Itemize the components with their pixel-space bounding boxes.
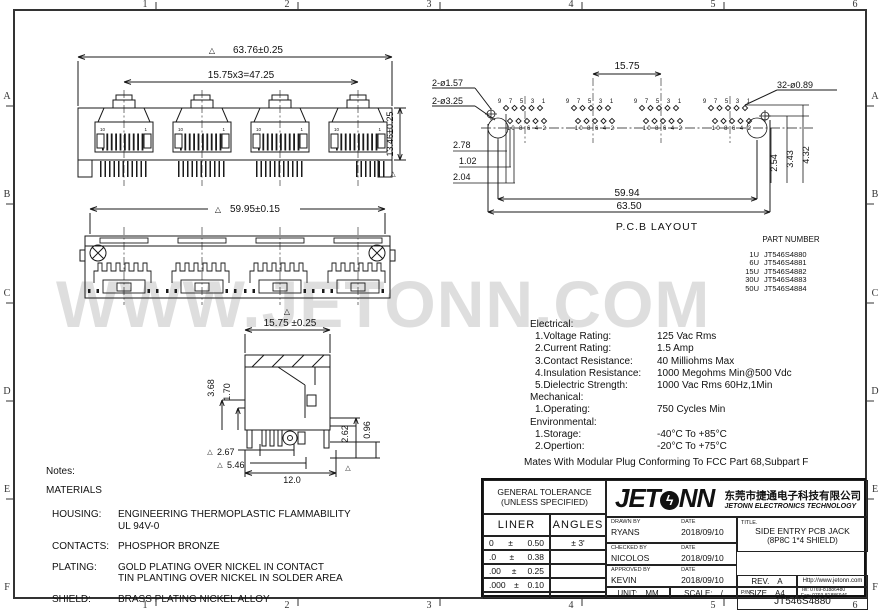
- port-pin-number: 1: [144, 127, 147, 132]
- spec-value: 1.5 Amp: [657, 343, 694, 355]
- drawing-title: SIDE ENTRY PCB JACK: [738, 526, 867, 536]
- port-pin-number: 10: [100, 127, 106, 132]
- port-pin-number: 1: [222, 127, 225, 132]
- date-value: 2018/09/10: [681, 527, 724, 537]
- pin-numbers-top: 9 7 5 3 1: [634, 99, 684, 105]
- inspection-triangle-icon: △: [209, 46, 216, 55]
- tol-value: 0.25: [527, 566, 544, 576]
- material-row: CONTACTS: PHOSPHOR BRONZE: [46, 541, 466, 553]
- drawn-by-cell: DRAWN BYDATE RYANS2018/09/10: [606, 517, 737, 543]
- tol-pm: ±: [514, 580, 519, 590]
- spec-label: 2.Current Rating:: [535, 343, 657, 355]
- pcb-layout-caption: P.C.B LAYOUT: [616, 221, 698, 233]
- website-cell: Http://www.jetonn.com: [797, 575, 868, 587]
- material-row: SHIELD: BRASS PLATING NICKEL ALLOY: [46, 594, 466, 606]
- zone-col-label: 4: [564, 0, 578, 10]
- rev-label: REV.: [751, 577, 769, 586]
- zone-col-label: 4: [564, 601, 578, 611]
- zone-row-label: E: [868, 485, 880, 495]
- inspection-triangle-icon: △: [390, 171, 396, 178]
- spec-item: 1.Operating: 750 Cycles Min: [528, 404, 866, 416]
- zone-row-label: F: [0, 583, 14, 593]
- port-pin-number: 10: [178, 127, 184, 132]
- title-label: TITLE.: [741, 520, 758, 526]
- spec-item: 4.Insulation Resistance: 1000 Megohms Mi…: [528, 368, 866, 380]
- material-value: BRASS PLATING NICKEL ALLOY: [118, 594, 270, 606]
- zone-row-label: A: [0, 92, 14, 102]
- part-number-row: 50U JT546S4884: [733, 285, 849, 294]
- spec-item: 2.Current Rating: 1.5 Amp: [528, 343, 866, 355]
- date-value: 2018/09/10: [681, 553, 724, 563]
- date-label: DATE: [681, 519, 695, 525]
- tolerance-row: .000 ± 0.10: [483, 578, 550, 592]
- pin-numbers-bottom: 10 8 6 4 2: [507, 126, 548, 132]
- rj45-port: [251, 90, 309, 186]
- port-pin-number: 1: [300, 127, 303, 132]
- drawn-by-label: DRAWN BY: [611, 519, 681, 525]
- tol-range: 0: [489, 538, 494, 548]
- notes: Notes: MATERIALS HOUSING: ENGINEERING TH…: [46, 462, 466, 605]
- tolerance-col-angles: ANGLES: [550, 514, 606, 536]
- dim-rear-width: 59.95±0.15: [230, 204, 280, 215]
- rj45-port: [95, 90, 153, 186]
- pin-numbers-top: 9 7 5 3 1: [498, 99, 548, 105]
- tolerance-angle: ± 3': [550, 536, 606, 550]
- title-block: GENERAL TOLERANCE (UNLESS SPECIFIED) LIN…: [481, 478, 866, 597]
- zone-row-label: A: [868, 92, 880, 102]
- tolerance-empty-row: [483, 592, 550, 599]
- zone-row-label: D: [0, 387, 14, 397]
- zone-col-label: 3: [422, 0, 436, 10]
- inspection-triangle-icon: △: [284, 307, 291, 316]
- unit-label: UNIT:: [617, 589, 637, 598]
- size-cell: SIZE A4: [737, 587, 797, 599]
- zone-col-label: 5: [706, 0, 720, 10]
- drawing-title-cell: TITLE. SIDE ENTRY PCB JACK (8P8C 1*4 SHI…: [737, 517, 868, 552]
- spec-section-header: Electrical:: [530, 319, 866, 331]
- tolerance-angle: [550, 578, 606, 592]
- drawn-by-value: RYANS: [611, 527, 681, 537]
- spec-section-header: Mechanical:: [530, 392, 866, 404]
- dim-pcb-b: 1.02: [459, 156, 477, 166]
- spec-value: 40 Milliohms Max: [657, 356, 734, 368]
- tol-pm: ±: [508, 538, 513, 548]
- spec-value: 125 Vac Rms: [657, 331, 716, 343]
- zone-col-label: 5: [706, 601, 720, 611]
- checked-by-label: CHECKED BY: [611, 545, 681, 551]
- material-value: TIN PLANTING OVER NICKEL IN SOLDER AREA: [118, 573, 343, 585]
- notes-title: Notes:: [46, 466, 466, 478]
- pin-numbers-top: 9 7 5 3 1: [566, 99, 616, 105]
- tol-pm: ±: [512, 566, 517, 576]
- tolerance-subtitle: (UNLESS SPECIFIED): [484, 497, 605, 508]
- unit-cell: UNIT: MM: [606, 587, 670, 599]
- material-label: HOUSING:: [46, 509, 118, 532]
- zone-row-label: C: [0, 289, 14, 299]
- zone-col-label: 1: [138, 0, 152, 10]
- tolerance-angle: [550, 564, 606, 578]
- logo-text: NN: [679, 483, 715, 513]
- zone-row-label: B: [868, 190, 880, 200]
- spec-label: 1.Operating:: [535, 404, 657, 416]
- dim-side-a: 3.68: [206, 379, 216, 397]
- side-view-drawing: △ 15.75 ±0.25 3.68 1.70 △ 2.67 △ 5.46 12…: [130, 300, 420, 485]
- size-value: A4: [775, 589, 785, 598]
- dim-side-g: 0.96: [362, 421, 372, 439]
- tol-range: .00: [489, 566, 501, 576]
- pcb-layout-drawing: 9 7 5 3 1 10 8 6 4 2 9 7 5 3 1 10 8 6 4 …: [425, 48, 865, 240]
- dim-side-width: 15.75 ±0.25: [264, 318, 317, 329]
- material-label: PLATING:: [46, 562, 118, 585]
- inspection-triangle-icon: △: [207, 449, 213, 456]
- tol-range: .000: [489, 580, 506, 590]
- dim-pcb-span-outer: 63.50: [616, 201, 641, 212]
- dim-pcb-pitch: 15.75: [614, 61, 639, 72]
- spec-item: 3.Contact Resistance: 40 Milliohms Max: [528, 356, 866, 368]
- material-value: ENGINEERING THERMOPLASTIC FLAMMABILITY: [118, 509, 351, 521]
- material-row: HOUSING: ENGINEERING THERMOPLASTIC FLAMM…: [46, 509, 466, 532]
- date-label: DATE: [681, 545, 695, 551]
- spec-label: 1.Voltage Rating:: [535, 331, 657, 343]
- spec-value: -40°C To +85°C: [657, 429, 727, 441]
- materials-heading: MATERIALS: [46, 485, 466, 497]
- date-label: DATE: [681, 567, 695, 573]
- dim-pcb-f: 4.32: [801, 146, 811, 164]
- rev-cell: REV. A: [737, 575, 797, 587]
- zone-row-label: C: [868, 289, 880, 299]
- dim-side-f: 2.62: [340, 425, 350, 443]
- zone-row-label: F: [868, 583, 880, 593]
- pin-numbers-bottom: 10 8 6 4 2: [643, 126, 684, 132]
- material-label: CONTACTS:: [46, 541, 118, 553]
- zone-col-label: 6: [848, 0, 862, 10]
- spec-label: 2.Opertion:: [535, 441, 657, 453]
- dim-hole-small: 2-ø1.57: [432, 78, 463, 88]
- dim-pcb-c: 2.04: [453, 172, 471, 182]
- inspection-triangle-icon: △: [215, 205, 222, 214]
- dim-front-width: 63.76±0.25: [233, 45, 283, 56]
- tolerance-angle: [550, 550, 606, 564]
- spec-value: 1000 Vac Rms 60Hz,1Min: [657, 380, 772, 392]
- spec-label: 4.Insulation Resistance:: [535, 368, 657, 380]
- dim-pcb-e: 3.43: [785, 150, 795, 168]
- spec-value: -20°C To +75°C: [657, 441, 727, 453]
- material-label: SHIELD:: [46, 594, 118, 606]
- dim-hole-large: 2-ø3.25: [432, 96, 463, 106]
- tol-pm: ±: [509, 552, 514, 562]
- zone-row-label: E: [0, 485, 14, 495]
- company-name-cn: 东莞市捷通电子科技有限公司: [725, 488, 862, 503]
- approved-by-cell: APPROVED BYDATE KEVIN2018/09/10: [606, 565, 737, 587]
- dim-side-b: 1.70: [222, 383, 232, 401]
- tolerance-empty-row: [550, 592, 606, 599]
- material-value: PHOSPHOR BRONZE: [118, 541, 220, 553]
- size-label: SIZE: [749, 589, 767, 598]
- spec-label: 1.Storage:: [535, 429, 657, 441]
- pin-numbers-bottom: 10 8 6 4 2: [575, 126, 616, 132]
- spec-section-header: Environmental:: [530, 417, 866, 429]
- tolerance-row: .0 ± 0.38: [483, 550, 550, 564]
- lightning-bolt-icon: ϟ: [660, 491, 679, 510]
- tel-fax-cell: Tel: 0769-81886480 Fax: 0769-81886946: [797, 587, 868, 599]
- tolerance-header: GENERAL TOLERANCE (UNLESS SPECIFIED): [483, 480, 606, 514]
- spec-item: 2.Opertion: -20°C To +75°C: [528, 441, 866, 453]
- rev-value: A: [777, 577, 782, 586]
- company-name-en: JETONN ELECTRONICS TECHNOLOGY: [725, 503, 862, 510]
- dim-pcb-a: 2.78: [453, 140, 471, 150]
- rear-view-drawing: △ 59.95±0.15: [60, 193, 415, 315]
- spec-value: 750 Cycles Min: [657, 404, 725, 416]
- material-value: UL 94V-0: [118, 521, 351, 533]
- zone-row-label: D: [868, 387, 880, 397]
- drawing-subtitle: (8P8C 1*4 SHIELD): [738, 536, 867, 545]
- company-band: JETϟNN 东莞市捷通电子科技有限公司 JETONN ELECTRONICS …: [606, 480, 868, 517]
- part-number-table: PART NUMBER 1U JT546S4880 6U JT546S4881 …: [733, 236, 849, 294]
- tol-value: 0.38: [527, 552, 544, 562]
- date-value: 2018/09/10: [681, 575, 724, 585]
- approved-by-value: KEVIN: [611, 575, 681, 585]
- checked-by-cell: CHECKED BYDATE NICOLOS2018/09/10: [606, 543, 737, 565]
- material-value: GOLD PLATING OVER NICKEL IN CONTACT: [118, 562, 343, 574]
- port-pin-number: 10: [256, 127, 262, 132]
- approved-by-label: APPROVED BY: [611, 567, 681, 573]
- port-pin-number: 1: [378, 127, 381, 132]
- variant: 50U: [733, 285, 759, 294]
- tolerance-row: 0 ± 0.50: [483, 536, 550, 550]
- spec-value: 1000 Megohms Min@500 Vdc: [657, 368, 792, 380]
- scale-cell: SCALE: /: [670, 587, 737, 599]
- material-row: PLATING: GOLD PLATING OVER NICKEL IN CON…: [46, 562, 466, 585]
- tolerance-row: .00 ± 0.25: [483, 564, 550, 578]
- pin-numbers-bottom: 10 8 6 4 2: [712, 126, 753, 132]
- fax: Fax: 0769-81886946: [801, 593, 867, 599]
- dim-pcb-d: 2.54: [769, 154, 779, 172]
- part-number-title: PART NUMBER: [733, 236, 849, 245]
- zone-col-label: 2: [280, 0, 294, 10]
- spec-item: 1.Storage: -40°C To +85°C: [528, 429, 866, 441]
- port-pin-number: 10: [334, 127, 340, 132]
- scale-label: SCALE:: [684, 589, 712, 598]
- spec-label: 5.Dielectric Strength:: [535, 380, 657, 392]
- dim-front-height: 13.46±0.25: [385, 112, 395, 157]
- tol-value: 0.10: [527, 580, 544, 590]
- dim-front-pitch: 15.75x3=47.25: [208, 70, 275, 81]
- pin-numbers-top: 9 7 5 3 1: [703, 99, 753, 105]
- spec-label: 3.Contact Resistance:: [535, 356, 657, 368]
- dim-pcb-span-inner: 59.94: [614, 188, 639, 199]
- spec-item: 5.Dielectric Strength: 1000 Vac Rms 60Hz…: [528, 380, 866, 392]
- checked-by-value: NICOLOS: [611, 553, 681, 563]
- spec-footer: Mates With Modular Plug Conforming To FC…: [524, 457, 866, 469]
- dim-side-c: 2.67: [217, 447, 235, 457]
- jetonn-logo: JETϟNN: [615, 483, 714, 514]
- shield-cutout: [88, 227, 387, 305]
- unit-value: MM: [645, 589, 658, 598]
- scale-value: /: [721, 589, 723, 598]
- specifications: Electrical: 1.Voltage Rating: 125 Vac Rm…: [528, 319, 866, 469]
- part-number: JT546S4884: [764, 285, 807, 294]
- tolerance-col-linear: LINER: [483, 514, 550, 536]
- rj45-port: [173, 90, 231, 186]
- pin-cluster: [503, 105, 751, 123]
- dim-pins: 32-ø0.89: [777, 80, 813, 90]
- zone-row-label: B: [0, 190, 14, 200]
- tol-value: 0.50: [527, 538, 544, 548]
- tolerance-title: GENERAL TOLERANCE: [484, 487, 605, 498]
- tol-range: .0: [489, 552, 496, 562]
- spec-item: 1.Voltage Rating: 125 Vac Rms: [528, 331, 866, 343]
- front-view-drawing: △ 63.76±0.25 15.75x3=47.25 13.46±0.25 △ …: [60, 30, 415, 208]
- logo-text: JET: [615, 483, 660, 513]
